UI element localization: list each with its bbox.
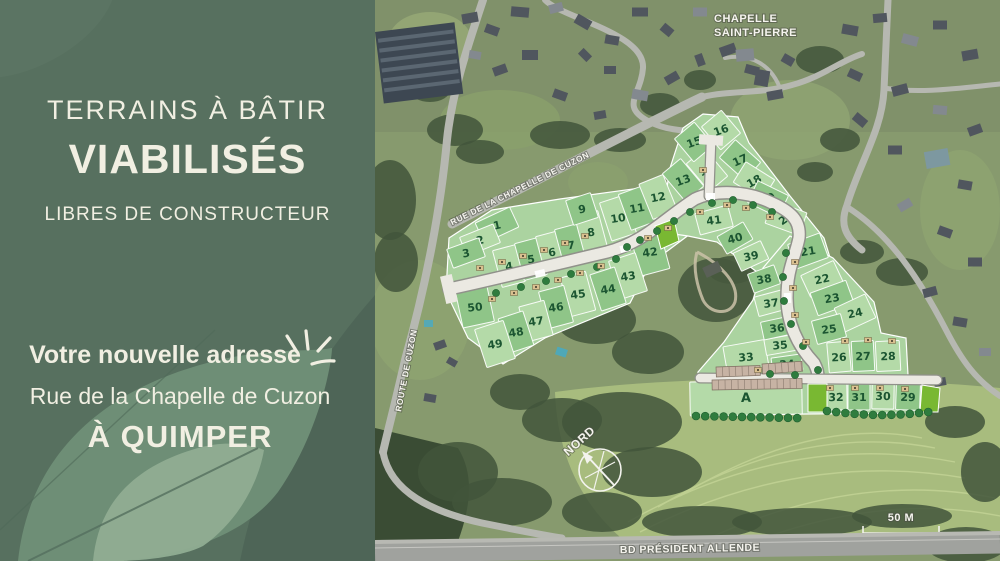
plot-number: 33 <box>738 350 754 364</box>
plot-number: 44 <box>599 282 616 297</box>
plot-number: 37 <box>763 296 780 311</box>
plot-26: 26 <box>827 341 852 373</box>
plot-number: 26 <box>831 351 847 365</box>
address-city: À QUIMPER <box>0 419 360 455</box>
plot-number: 48 <box>507 325 524 340</box>
site-plan-map: 1234567891011121314151617181920212223242… <box>375 0 1000 561</box>
plot-number: 11 <box>628 201 645 216</box>
leaf-decoration <box>0 0 375 561</box>
plot-number: 36 <box>769 321 786 336</box>
bd-allende: BD PRÉSIDENT ALLENDE <box>620 541 761 556</box>
chapelle-line2: SAINT-PIERRE <box>714 27 797 39</box>
plot-number: 49 <box>486 337 503 352</box>
address-street: Rue de la Chapelle de Cuzon <box>0 383 360 410</box>
plot-number: 10 <box>609 211 626 226</box>
panel-title-line3: LIBRES DE CONSTRUCTEUR <box>0 204 375 226</box>
chapelle-line1: CHAPELLE <box>714 13 777 25</box>
plot-number: 25 <box>821 322 838 337</box>
panel-title-line1: TERRAINS À BÂTIR <box>0 95 375 126</box>
flyer: TERRAINS À BÂTIR VIABILISÉS LIBRES DE CO… <box>0 0 1000 561</box>
plot-number: A <box>741 391 751 406</box>
plot-number: 47 <box>528 314 545 329</box>
aerial-plan: 1234567891011121314151617181920212223242… <box>375 0 1000 561</box>
plot-number: 27 <box>855 350 871 363</box>
address-intro: Votre nouvelle adresse <box>0 341 330 370</box>
scale-label: 50 M <box>888 512 914 524</box>
plot-number: 43 <box>619 269 636 284</box>
plot-number: 28 <box>880 350 896 363</box>
plot-number: 32 <box>828 391 843 404</box>
plot-number: 23 <box>823 291 840 306</box>
plot-number: 30 <box>875 390 891 403</box>
plot-number: 46 <box>548 300 565 315</box>
plot-28: 28 <box>875 340 901 371</box>
plot-number: 41 <box>706 213 723 228</box>
plot-number: 29 <box>900 391 916 404</box>
left-panel: TERRAINS À BÂTIR VIABILISÉS LIBRES DE CO… <box>0 0 375 561</box>
plot-number: 35 <box>772 338 788 352</box>
plot-27: 27 <box>851 340 875 371</box>
plot-number: 42 <box>642 245 659 260</box>
solar-farm <box>375 22 463 103</box>
pool-small <box>424 320 433 327</box>
plot-number: 38 <box>755 272 772 287</box>
plot-number: 45 <box>570 287 587 302</box>
plot-number: 31 <box>851 391 866 404</box>
panel-title-line2: VIABILISÉS <box>0 136 375 183</box>
plot-number: 50 <box>467 300 484 315</box>
